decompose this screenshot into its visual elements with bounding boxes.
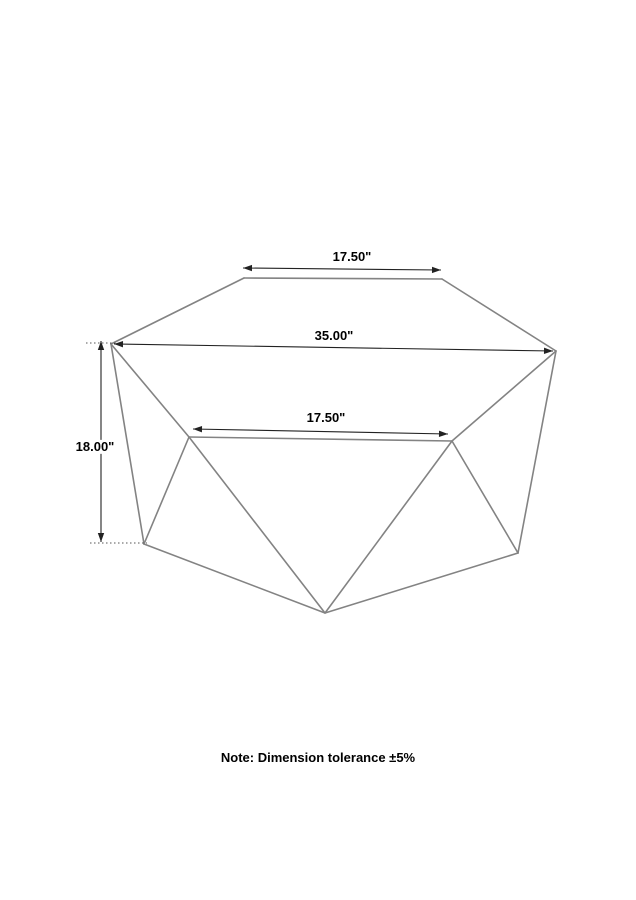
edge-front_left-bottom_left <box>144 437 189 544</box>
dim-overall-width-line <box>114 344 553 351</box>
dim-front-width-arrowhead-end <box>439 431 448 437</box>
dim-front-width-line <box>193 429 448 434</box>
edge-right-front_right <box>452 351 556 441</box>
dim-height-arrowhead-end <box>98 533 104 542</box>
dim-top-width-label: 17.50" <box>331 250 374 264</box>
edge-right-bottom_right <box>518 351 556 553</box>
dim-top-width-arrowhead-start <box>243 265 252 271</box>
edge-top_left-top_right <box>244 278 442 279</box>
tolerance-note: Note: Dimension tolerance ±5% <box>0 750 636 765</box>
product-dimension-page: 17.50"35.00"17.50"18.00" Note: Dimension… <box>0 0 636 900</box>
dim-overall-width-label: 35.00" <box>313 329 356 343</box>
edge-left-top_left <box>111 278 244 344</box>
edge-front_right-front_left <box>189 437 452 441</box>
dim-height-label: 18.00" <box>74 440 117 454</box>
edge-front_right-bottom_center <box>325 441 452 613</box>
dim-height-arrowhead-start <box>98 341 104 350</box>
dim-top-width-line <box>243 268 441 270</box>
edge-bottom_center-bottom_right <box>325 553 518 613</box>
edge-front_right-bottom_right <box>452 441 518 553</box>
dim-top-width-arrowhead-end <box>432 267 441 273</box>
dim-front-width-label: 17.50" <box>305 411 348 425</box>
dim-front-width-arrowhead-start <box>193 426 202 432</box>
edge-front_left-left <box>111 344 189 437</box>
edge-top_right-right <box>442 279 556 351</box>
